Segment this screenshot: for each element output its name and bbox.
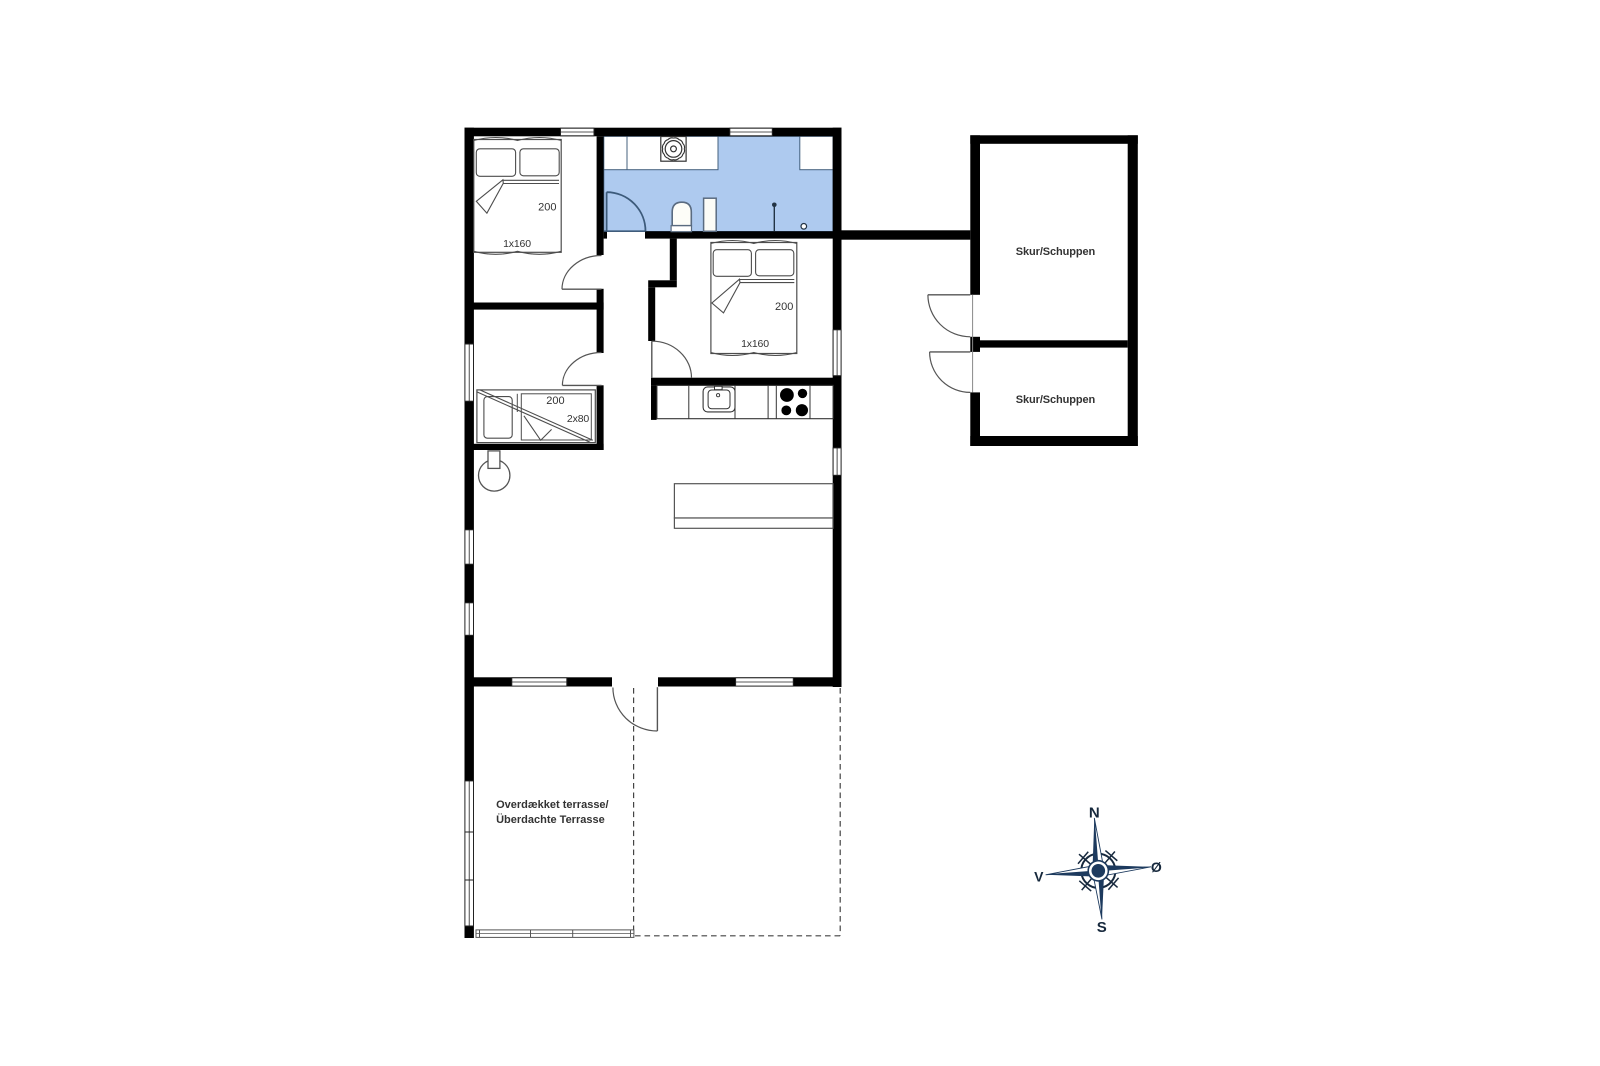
svg-text:V: V xyxy=(1034,869,1044,885)
svg-text:200: 200 xyxy=(775,301,793,313)
svg-text:N: N xyxy=(1089,804,1100,821)
svg-text:Überdachte Terrasse: Überdachte Terrasse xyxy=(496,813,605,826)
svg-text:1x160: 1x160 xyxy=(741,338,769,350)
svg-text:Overdækket terrasse/: Overdækket terrasse/ xyxy=(496,799,609,811)
svg-text:1x160: 1x160 xyxy=(503,238,531,250)
svg-text:Skur/Schuppen: Skur/Schuppen xyxy=(1016,246,1096,258)
svg-text:Skur/Schuppen: Skur/Schuppen xyxy=(1016,394,1096,406)
svg-text:2x80: 2x80 xyxy=(567,413,589,425)
svg-text:S: S xyxy=(1097,919,1107,936)
svg-text:200: 200 xyxy=(546,395,564,407)
svg-text:200: 200 xyxy=(538,202,556,214)
svg-text:Ø: Ø xyxy=(1151,859,1162,875)
